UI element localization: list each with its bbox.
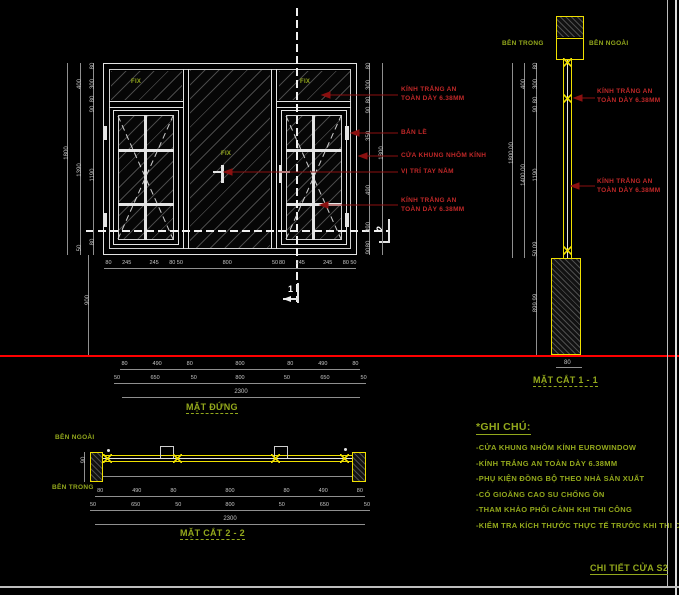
hinge-pin-icon [344,448,347,451]
lintel-wall [556,16,584,60]
dim-line [556,367,582,368]
note-item: -CÓ GIOĂNG CAO SU CHỐNG ỒN [476,487,674,503]
dim-chain-bottom: 80 245 245 80 50 800 50 80 245 245 80 50 [104,261,356,267]
elevation-view-label: MẶT ĐỨNG [186,402,238,414]
hinge-icon [345,126,349,140]
dim-text: 80 [564,360,571,366]
hinge-icon [345,213,349,227]
section-cut-line-1 [296,8,298,302]
dim-line [104,268,356,269]
door-leaf-plan [160,446,174,458]
dim-chain-row2: 50 650 50 800 50 650 50 [114,376,366,382]
border-line [667,0,668,586]
dim-line [114,383,366,384]
fix-label-right: FIX [300,79,310,85]
glazing-bar [118,203,174,206]
dim-text: 90 [81,448,87,472]
glazing-bar [312,115,315,240]
mullion-line [276,69,277,249]
fixed-glass-center [190,70,270,248]
dim-text: 90 [366,98,372,122]
mullion-line [183,69,184,249]
note-item: -KÍNH TRẮNG AN TOÀN DÀY 6.38MM [476,456,674,472]
dim-text: 899.99 [533,291,539,315]
mullion-line [271,69,272,249]
callout-handle: VỊ TRÍ TAY NẮM [401,168,491,177]
section-cut-line-2 [86,230,390,232]
transom-rail [277,107,351,108]
dim-chain-row1: 80 490 80 800 80 490 80 [95,489,365,495]
section-marker-line [379,241,390,243]
dim-text: 1800.00 [509,141,515,165]
glazing-bar [286,203,342,206]
hinge-icon [103,213,107,227]
dim-text: 350 [366,124,372,148]
dim-text: 90 [366,239,372,263]
dim-text: 400 [521,72,527,96]
dim-text: 90 [90,97,96,121]
note-item: -KIỂM TRA KÍCH THƯỚC THỰC TẾ TRƯỚC KHI T… [476,518,674,534]
callout-s1-glass-bottom: KÍNH TRẮNG AN TOÀN DÀY 6.38MM [597,178,669,196]
handle-icon [281,171,290,173]
border-line [0,586,679,588]
section-marker-1: 1 [288,285,293,294]
dim-chain-row1: 80 490 80 800 80 490 80 [120,362,360,368]
dim-text: 400 [77,72,83,96]
jamb-wall-left [90,452,103,482]
dim-text: 50 [77,236,83,260]
transom-rail [109,107,183,108]
dim-text: 90 [533,97,539,121]
inside-label: BÊN TRONG [52,484,94,493]
dim-line [95,524,365,525]
border-line [675,0,677,595]
section-1-1-view-label: MẶT CẮT 1 - 1 [533,375,598,387]
notes-title: *GHI CHÚ: [476,421,531,435]
transom-glass-left [111,71,182,100]
dim-text: 900 [85,288,91,312]
transom-glass-right [279,71,350,100]
fix-label-left: FIX [131,79,141,85]
callout-hinge: BẢN LỀ [401,129,491,138]
glazing-bar [286,149,342,152]
profile-x-icon [173,454,182,463]
dim-text: 1400.00 [521,163,527,187]
notes-list: -CỬA KHUNG NHÔM KÍNH EUROWINDOW -KÍNH TR… [476,440,674,533]
frame-member-plan [103,455,352,462]
hinge-icon [103,126,107,140]
glazing-bar [144,115,147,240]
callout-frame: CỬA KHUNG NHÔM KÍNH [401,152,511,161]
callout-glass-top: KÍNH TRẮNG AN TOÀN DÀY 6.38MM [401,86,475,104]
section-2-2-view-label: MẶT CẮT 2 - 2 [180,528,245,540]
profile-x-icon [563,58,572,67]
profile-x-icon [103,454,112,463]
dim-chain-row2: 50 650 50 800 50 650 50 [90,503,370,509]
inside-label: BÊN TRONG [502,40,544,49]
dim-text: 80 [90,230,96,254]
handle-icon [279,165,282,183]
section-marker-2: 2 [376,226,385,231]
profile-x-icon [271,454,280,463]
inner-face-line [103,476,352,477]
transom-rail [277,101,351,102]
section-marker-line [297,283,299,303]
dim-line [95,496,365,497]
jamb-wall-right [352,452,366,482]
mullion-line [188,69,189,249]
dim-text: 1190 [90,163,96,187]
dim-total: 2300 [95,516,365,522]
dim-line [122,397,360,398]
dim-text: 50.09 [533,237,539,261]
note-item: -CỬA KHUNG NHÔM KÍNH EUROWINDOW [476,440,674,456]
dim-text: 1390 [77,158,83,182]
drawing-title: CHI TIẾT CỬA S2 [590,563,668,575]
callout-glass-bottom: KÍNH TRẮNG AN TOÀN DÀY 6.38MM [401,197,475,215]
section-marker-line [283,298,299,300]
note-item: -PHỤ KIỆN ĐỒNG BỘ THEO NHÀ SẢN XUẤT [476,471,674,487]
outside-label: BÊN NGOÀI [589,40,629,49]
profile-x-icon [563,94,572,103]
sill-wall [551,258,581,355]
dim-text: 1800 [379,141,385,165]
profile-x-icon [340,454,349,463]
outside-label: BÊN NGOÀI [55,434,95,443]
fix-label-center: FIX [221,151,231,157]
transom-rail [109,101,183,102]
dim-text: 490 [366,178,372,202]
dim-text: 1800 [64,141,70,165]
ground-line [0,355,679,357]
frame-member-section [563,60,572,258]
notes-block: *GHI CHÚ: -CỬA KHUNG NHÔM KÍNH EUROWINDO… [476,417,674,533]
dim-line [90,510,370,511]
section-marker-line [388,219,390,243]
profile-x-icon [563,246,572,255]
dim-text: 1190 [533,163,539,187]
handle-icon [221,165,224,183]
hinge-pin-icon [107,449,110,452]
dim-total: 2300 [122,389,360,395]
cad-canvas[interactable]: FIX FIX FIX 1 2 [0,0,679,595]
handle-icon [213,171,222,173]
glazing-bar [118,149,174,152]
dim-line [120,369,360,370]
note-item: -THAM KHẢO PHỐI CẢNH KHI THI CÔNG [476,502,674,518]
callout-s1-glass-top: KÍNH TRẮNG AN TOÀN DÀY 6.38MM [597,88,669,106]
